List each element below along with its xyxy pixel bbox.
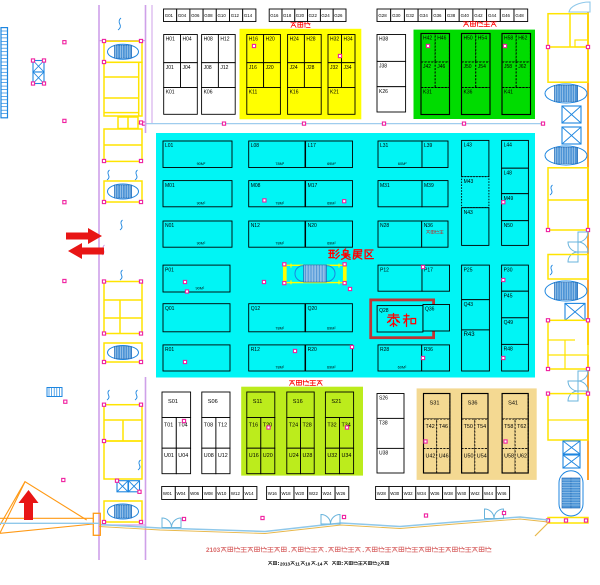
svg-text:G42: G42 (474, 13, 483, 18)
svg-text:H46: H46 (437, 36, 446, 42)
svg-text:W36: W36 (430, 491, 440, 496)
svg-text:J32: J32 (330, 65, 338, 71)
svg-text:K26: K26 (379, 89, 388, 95)
svg-text:S06: S06 (208, 399, 218, 405)
svg-text:N20: N20 (308, 223, 317, 229)
svg-text:R28: R28 (380, 347, 389, 353)
svg-text:J54: J54 (478, 64, 486, 70)
svg-text:Q49: Q49 (504, 320, 514, 326)
svg-text:G01: G01 (165, 13, 174, 18)
svg-text:L44: L44 (504, 143, 513, 149)
svg-text:T58: T58 (504, 424, 513, 430)
svg-text:H01: H01 (166, 37, 175, 43)
svg-text:W38: W38 (444, 491, 454, 496)
svg-text:N01: N01 (165, 223, 174, 229)
svg-text:R43: R43 (464, 332, 476, 338)
svg-text:L17: L17 (308, 143, 317, 149)
svg-text:H04: H04 (183, 37, 192, 43)
svg-text:W32: W32 (404, 491, 414, 496)
svg-text:G38: G38 (447, 13, 456, 18)
svg-text:G20: G20 (296, 13, 305, 18)
svg-text:G40: G40 (461, 13, 470, 18)
svg-text:G26: G26 (334, 13, 343, 18)
svg-text:H54: H54 (478, 36, 487, 42)
svg-text:G22: G22 (309, 13, 318, 18)
svg-text:60M²: 60M² (398, 162, 407, 166)
svg-text:Q20: Q20 (308, 306, 318, 312)
svg-text:T12: T12 (218, 423, 227, 429)
svg-text:10: 10 (305, 561, 311, 566)
svg-text:R12: R12 (251, 347, 260, 353)
svg-text:90M²: 90M² (197, 162, 206, 166)
svg-text:U62: U62 (517, 453, 527, 459)
svg-text:Q43: Q43 (464, 302, 474, 308)
svg-text:N28: N28 (380, 223, 389, 229)
svg-text:S16: S16 (293, 399, 303, 405)
svg-text:W18: W18 (282, 491, 292, 496)
svg-text:G16: G16 (270, 13, 279, 18)
svg-text:U20: U20 (263, 453, 273, 459)
svg-text:G34: G34 (420, 13, 429, 18)
svg-text:W24: W24 (323, 491, 333, 496)
svg-text:G28: G28 (378, 13, 387, 18)
svg-text:78M²: 78M² (275, 201, 284, 205)
svg-text:N36: N36 (424, 223, 433, 229)
svg-text:J42: J42 (423, 64, 431, 70)
svg-text:W22: W22 (309, 491, 319, 496)
svg-text:S31: S31 (430, 401, 440, 407)
svg-text:G10: G10 (218, 13, 227, 18)
svg-text:U54: U54 (477, 453, 487, 459)
svg-text:M39: M39 (424, 183, 434, 189)
svg-text:T24: T24 (289, 423, 298, 429)
svg-text:H20: H20 (266, 37, 275, 43)
svg-text:K36: K36 (464, 90, 473, 96)
svg-text:69M²: 69M² (327, 366, 336, 370)
svg-text:90M²: 90M² (197, 242, 206, 246)
svg-text:M31: M31 (380, 183, 390, 189)
svg-text:H28: H28 (306, 37, 315, 43)
svg-text:K31: K31 (423, 90, 432, 96)
svg-text:J58: J58 (504, 64, 512, 70)
svg-text:R48: R48 (504, 347, 513, 353)
svg-text:W46: W46 (497, 491, 507, 496)
svg-text:W04: W04 (177, 491, 187, 496)
svg-text:L43: L43 (464, 143, 473, 149)
svg-text:T04: T04 (178, 423, 187, 429)
svg-text:M43: M43 (464, 179, 474, 185)
svg-text:G08: G08 (204, 13, 213, 18)
svg-text:W16: W16 (268, 491, 278, 496)
svg-text:T38: T38 (379, 421, 388, 427)
svg-text:M17: M17 (308, 183, 318, 189)
svg-text:J16: J16 (249, 65, 257, 71)
svg-text:H34: H34 (344, 37, 353, 43)
svg-text:R36: R36 (424, 347, 433, 353)
svg-text:J24: J24 (290, 65, 298, 71)
svg-text:L08: L08 (251, 143, 260, 149)
svg-text:U38: U38 (379, 451, 388, 457)
svg-text:T42: T42 (426, 424, 435, 430)
svg-text:Q28: Q28 (379, 308, 389, 314)
svg-text:H32: H32 (330, 37, 339, 43)
svg-text:P30: P30 (504, 267, 513, 273)
svg-text:J20: J20 (266, 65, 274, 71)
svg-text:K41: K41 (504, 90, 513, 96)
svg-text:G18: G18 (283, 13, 292, 18)
svg-text:H42: H42 (423, 36, 432, 42)
svg-text:G04: G04 (178, 13, 187, 18)
svg-text:S41: S41 (508, 401, 518, 407)
svg-text:W34: W34 (417, 491, 427, 496)
svg-text:Q12: Q12 (251, 306, 261, 312)
svg-text:H50: H50 (464, 36, 473, 42)
svg-text:R20: R20 (308, 347, 317, 353)
svg-text:U42: U42 (426, 453, 436, 459)
svg-text:G48: G48 (515, 13, 524, 18)
svg-text:H12: H12 (220, 37, 229, 43)
svg-text:H16: H16 (249, 37, 258, 43)
svg-text:N12: N12 (251, 223, 260, 229)
svg-text:L39: L39 (424, 143, 433, 149)
svg-text:T50: T50 (464, 424, 473, 430)
svg-text:K11: K11 (249, 90, 258, 96)
svg-text:U34: U34 (342, 453, 352, 459)
svg-text:2013: 2013 (280, 561, 291, 566)
svg-text:G46: G46 (502, 13, 511, 18)
svg-text:R01: R01 (165, 347, 174, 353)
svg-text:W01: W01 (163, 491, 173, 496)
svg-text:L31: L31 (380, 143, 389, 149)
svg-text:11: 11 (295, 561, 300, 566)
svg-text:H24: H24 (290, 37, 299, 43)
svg-text:Q01: Q01 (165, 306, 175, 312)
svg-text:W10: W10 (217, 491, 227, 496)
svg-text:78M²: 78M² (275, 326, 284, 330)
svg-text:G30: G30 (392, 13, 401, 18)
svg-text:W44: W44 (484, 491, 494, 496)
svg-text:U58: U58 (504, 453, 514, 459)
svg-text:J46: J46 (437, 64, 445, 70)
svg-text:J04: J04 (183, 65, 191, 71)
svg-text:U32: U32 (327, 453, 337, 459)
svg-text:S26: S26 (379, 396, 388, 402)
svg-text:U28: U28 (303, 453, 313, 459)
svg-text:G24: G24 (321, 13, 330, 18)
svg-text:T08: T08 (204, 423, 213, 429)
svg-text:G14: G14 (244, 13, 253, 18)
svg-text:P17: P17 (424, 267, 433, 273)
svg-text:W08: W08 (204, 491, 214, 496)
svg-text:2103: 2103 (206, 547, 221, 554)
svg-text:T28: T28 (303, 423, 312, 429)
svg-text:G12: G12 (231, 13, 240, 18)
svg-text:M08: M08 (251, 183, 261, 189)
svg-text:N50: N50 (504, 223, 513, 229)
svg-text:T46: T46 (439, 424, 448, 430)
svg-text:P01: P01 (165, 267, 174, 273)
svg-text:69M²: 69M² (327, 162, 336, 166)
svg-text:J01: J01 (166, 65, 174, 71)
svg-text:78M²: 78M² (275, 366, 284, 370)
svg-text:69M²: 69M² (327, 326, 336, 330)
svg-text:H58: H58 (504, 36, 513, 42)
svg-text:60M²: 60M² (398, 366, 407, 370)
svg-text:W40: W40 (457, 491, 467, 496)
svg-text:T32: T32 (327, 423, 336, 429)
svg-text:W14: W14 (245, 491, 255, 496)
svg-text:-14: -14 (316, 561, 323, 566)
svg-text:K06: K06 (204, 90, 213, 96)
svg-text:U46: U46 (439, 453, 449, 459)
svg-text:G44: G44 (488, 13, 497, 18)
svg-text:U01: U01 (164, 453, 174, 459)
svg-text:W26: W26 (336, 491, 346, 496)
svg-text:T62: T62 (517, 424, 526, 430)
svg-text:78M²: 78M² (275, 242, 284, 246)
svg-text:G06: G06 (191, 13, 200, 18)
svg-text:69M²: 69M² (327, 201, 336, 205)
svg-text:L01: L01 (165, 143, 174, 149)
svg-text:S21: S21 (331, 399, 341, 405)
svg-text:W30: W30 (390, 491, 400, 496)
svg-text:N43: N43 (464, 210, 473, 216)
svg-text:S11: S11 (253, 399, 263, 405)
svg-text:90M²: 90M² (195, 287, 204, 291)
svg-text:W28: W28 (377, 491, 387, 496)
svg-text:U08: U08 (204, 453, 214, 459)
svg-text:J28: J28 (306, 65, 314, 71)
svg-text:P12: P12 (380, 267, 389, 273)
svg-text:U50: U50 (464, 453, 474, 459)
svg-text:J34: J34 (344, 65, 352, 71)
svg-text:J08: J08 (204, 65, 212, 71)
svg-text:U16: U16 (249, 453, 259, 459)
svg-text:U24: U24 (289, 453, 299, 459)
svg-text:K01: K01 (166, 90, 175, 96)
svg-text:H38: H38 (379, 37, 388, 43)
svg-text:K16: K16 (290, 90, 299, 96)
svg-text:90M²: 90M² (197, 201, 206, 205)
svg-text:P25: P25 (464, 267, 473, 273)
svg-text:W20: W20 (295, 491, 305, 496)
svg-text:G36: G36 (433, 13, 442, 18)
svg-text:T54: T54 (477, 424, 486, 430)
svg-text:W12: W12 (231, 491, 241, 496)
svg-text:Q36: Q36 (425, 307, 435, 313)
svg-text:H08: H08 (204, 37, 213, 43)
svg-text:H62: H62 (518, 36, 527, 42)
svg-text:69M²: 69M² (327, 242, 336, 246)
svg-text:78M²: 78M² (275, 162, 284, 166)
svg-text:J50: J50 (464, 64, 472, 70)
svg-text:G32: G32 (406, 13, 415, 18)
svg-text:K21: K21 (330, 90, 339, 96)
svg-text:J12: J12 (220, 65, 228, 71)
svg-text:J62: J62 (518, 64, 526, 70)
svg-text:T01: T01 (164, 423, 173, 429)
svg-text:L48: L48 (504, 170, 513, 176)
svg-text:S01: S01 (168, 399, 178, 405)
svg-text:U12: U12 (218, 453, 228, 459)
svg-text:M01: M01 (165, 183, 175, 189)
svg-text:U04: U04 (178, 453, 188, 459)
svg-text:S36: S36 (468, 401, 478, 407)
svg-text:W06: W06 (190, 491, 200, 496)
svg-text:P45: P45 (504, 293, 513, 299)
svg-text:J38: J38 (379, 64, 387, 70)
svg-text:T16: T16 (249, 423, 258, 429)
svg-text:W42: W42 (471, 491, 481, 496)
